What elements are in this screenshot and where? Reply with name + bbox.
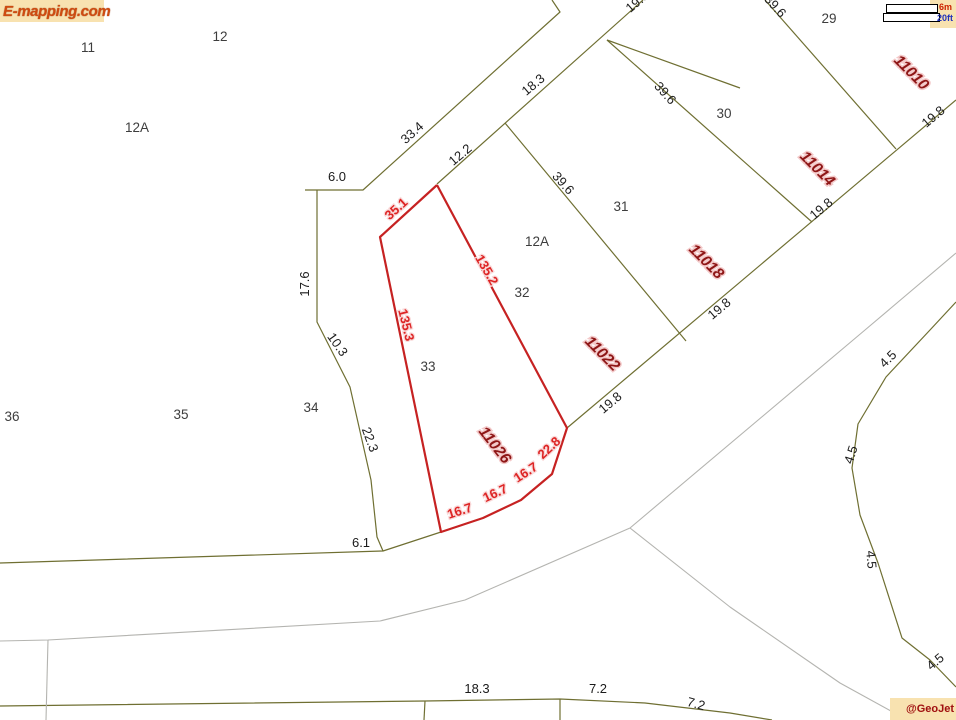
map-canvas[interactable]: 33.412.218.339.639.639.619.819.819.819.8… <box>0 0 956 720</box>
dim-label: 4.5 <box>923 650 946 673</box>
scale-bar-metric-bar <box>886 4 938 13</box>
lot-number: 31 <box>613 199 628 214</box>
scale-bar-imperial-bar <box>883 13 940 22</box>
block-rear-line <box>607 40 740 88</box>
emapping-logo: E-mapping.com <box>0 0 104 22</box>
lot-number: 30 <box>716 106 731 121</box>
lot-number: 29 <box>821 11 836 26</box>
red-dim-label: 22.8 <box>535 434 564 462</box>
plat-map-viewer: 33.412.218.339.639.639.619.819.819.819.8… <box>0 0 956 720</box>
red-dim-label: 35.1 <box>382 195 411 223</box>
lot-number: 11 <box>81 40 95 55</box>
left-boundary <box>317 190 383 551</box>
dim-label: 19.8 <box>596 389 625 417</box>
road-ne-edge <box>630 253 956 528</box>
dim-label: 12.2 <box>446 141 475 169</box>
bottom-lot-tick-1 <box>424 701 425 720</box>
red-dim-label: 135.2 <box>472 252 501 288</box>
geojet-credit-text: @GeoJet <box>906 703 954 715</box>
lot-number: 32 <box>514 285 529 300</box>
lot-number: 34 <box>303 400 319 415</box>
dim-label: 18.3 <box>519 71 548 99</box>
road-se-edge <box>630 528 900 716</box>
dim-label: 4.5 <box>841 444 861 466</box>
lot-number: 12 <box>212 29 227 44</box>
lot-number: 12A <box>525 234 549 249</box>
dim-label: 18.3 <box>464 681 489 696</box>
address-label: 11018 <box>685 241 727 283</box>
address-label: 11014 <box>796 148 838 190</box>
dim-label: 6.0 <box>328 169 346 184</box>
red-dim-label: 16.7 <box>445 500 474 522</box>
lot-line-32-31 <box>505 123 686 341</box>
red-dim-label: 16.7 <box>480 481 509 505</box>
geojet-credit-badge: @GeoJet <box>890 698 956 720</box>
dim-label: 7.2 <box>589 681 607 696</box>
dim-label: 4.5 <box>863 550 880 569</box>
scale-imperial-label: 20ft <box>937 13 953 23</box>
dim-label: 19.8 <box>705 295 734 323</box>
emapping-logo-text: E-mapping.com <box>3 3 110 20</box>
dim-label: 7.2 <box>685 694 706 713</box>
dim-label: 39.6 <box>549 169 577 198</box>
road-sw-stub <box>46 640 48 720</box>
dim-label: 19.8 <box>807 195 836 223</box>
scale-bar: 6m 20ft <box>878 0 956 30</box>
dim-label: 17.6 <box>297 271 312 296</box>
dim-label: 6.1 <box>352 535 370 550</box>
road-sw-edge <box>0 528 630 641</box>
dim-label: 33.4 <box>398 119 427 147</box>
scale-metric-label: 6m <box>939 2 952 12</box>
dim-label: 39.6 <box>761 0 789 20</box>
culdesac-curve <box>852 302 956 687</box>
dim-label: 22.3 <box>359 425 382 454</box>
street-frontage-line <box>567 100 956 428</box>
lot-number: 35 <box>173 407 188 422</box>
west-boundary <box>0 532 441 563</box>
address-label: 11026 <box>475 423 514 467</box>
lot-line-31-30 <box>607 40 812 222</box>
red-dim-label: 16.7 <box>511 459 540 485</box>
bottom-boundary <box>0 699 772 720</box>
dim-label: 19.8 <box>623 0 652 15</box>
address-label: 11010 <box>890 52 932 94</box>
lot-number: 33 <box>420 359 435 374</box>
road-upper-left-edge <box>305 0 560 190</box>
lot-number: 36 <box>4 409 19 424</box>
address-label: 11022 <box>581 333 623 375</box>
dim-label: 19.8 <box>919 103 948 131</box>
lot-number: 12A <box>125 120 149 135</box>
